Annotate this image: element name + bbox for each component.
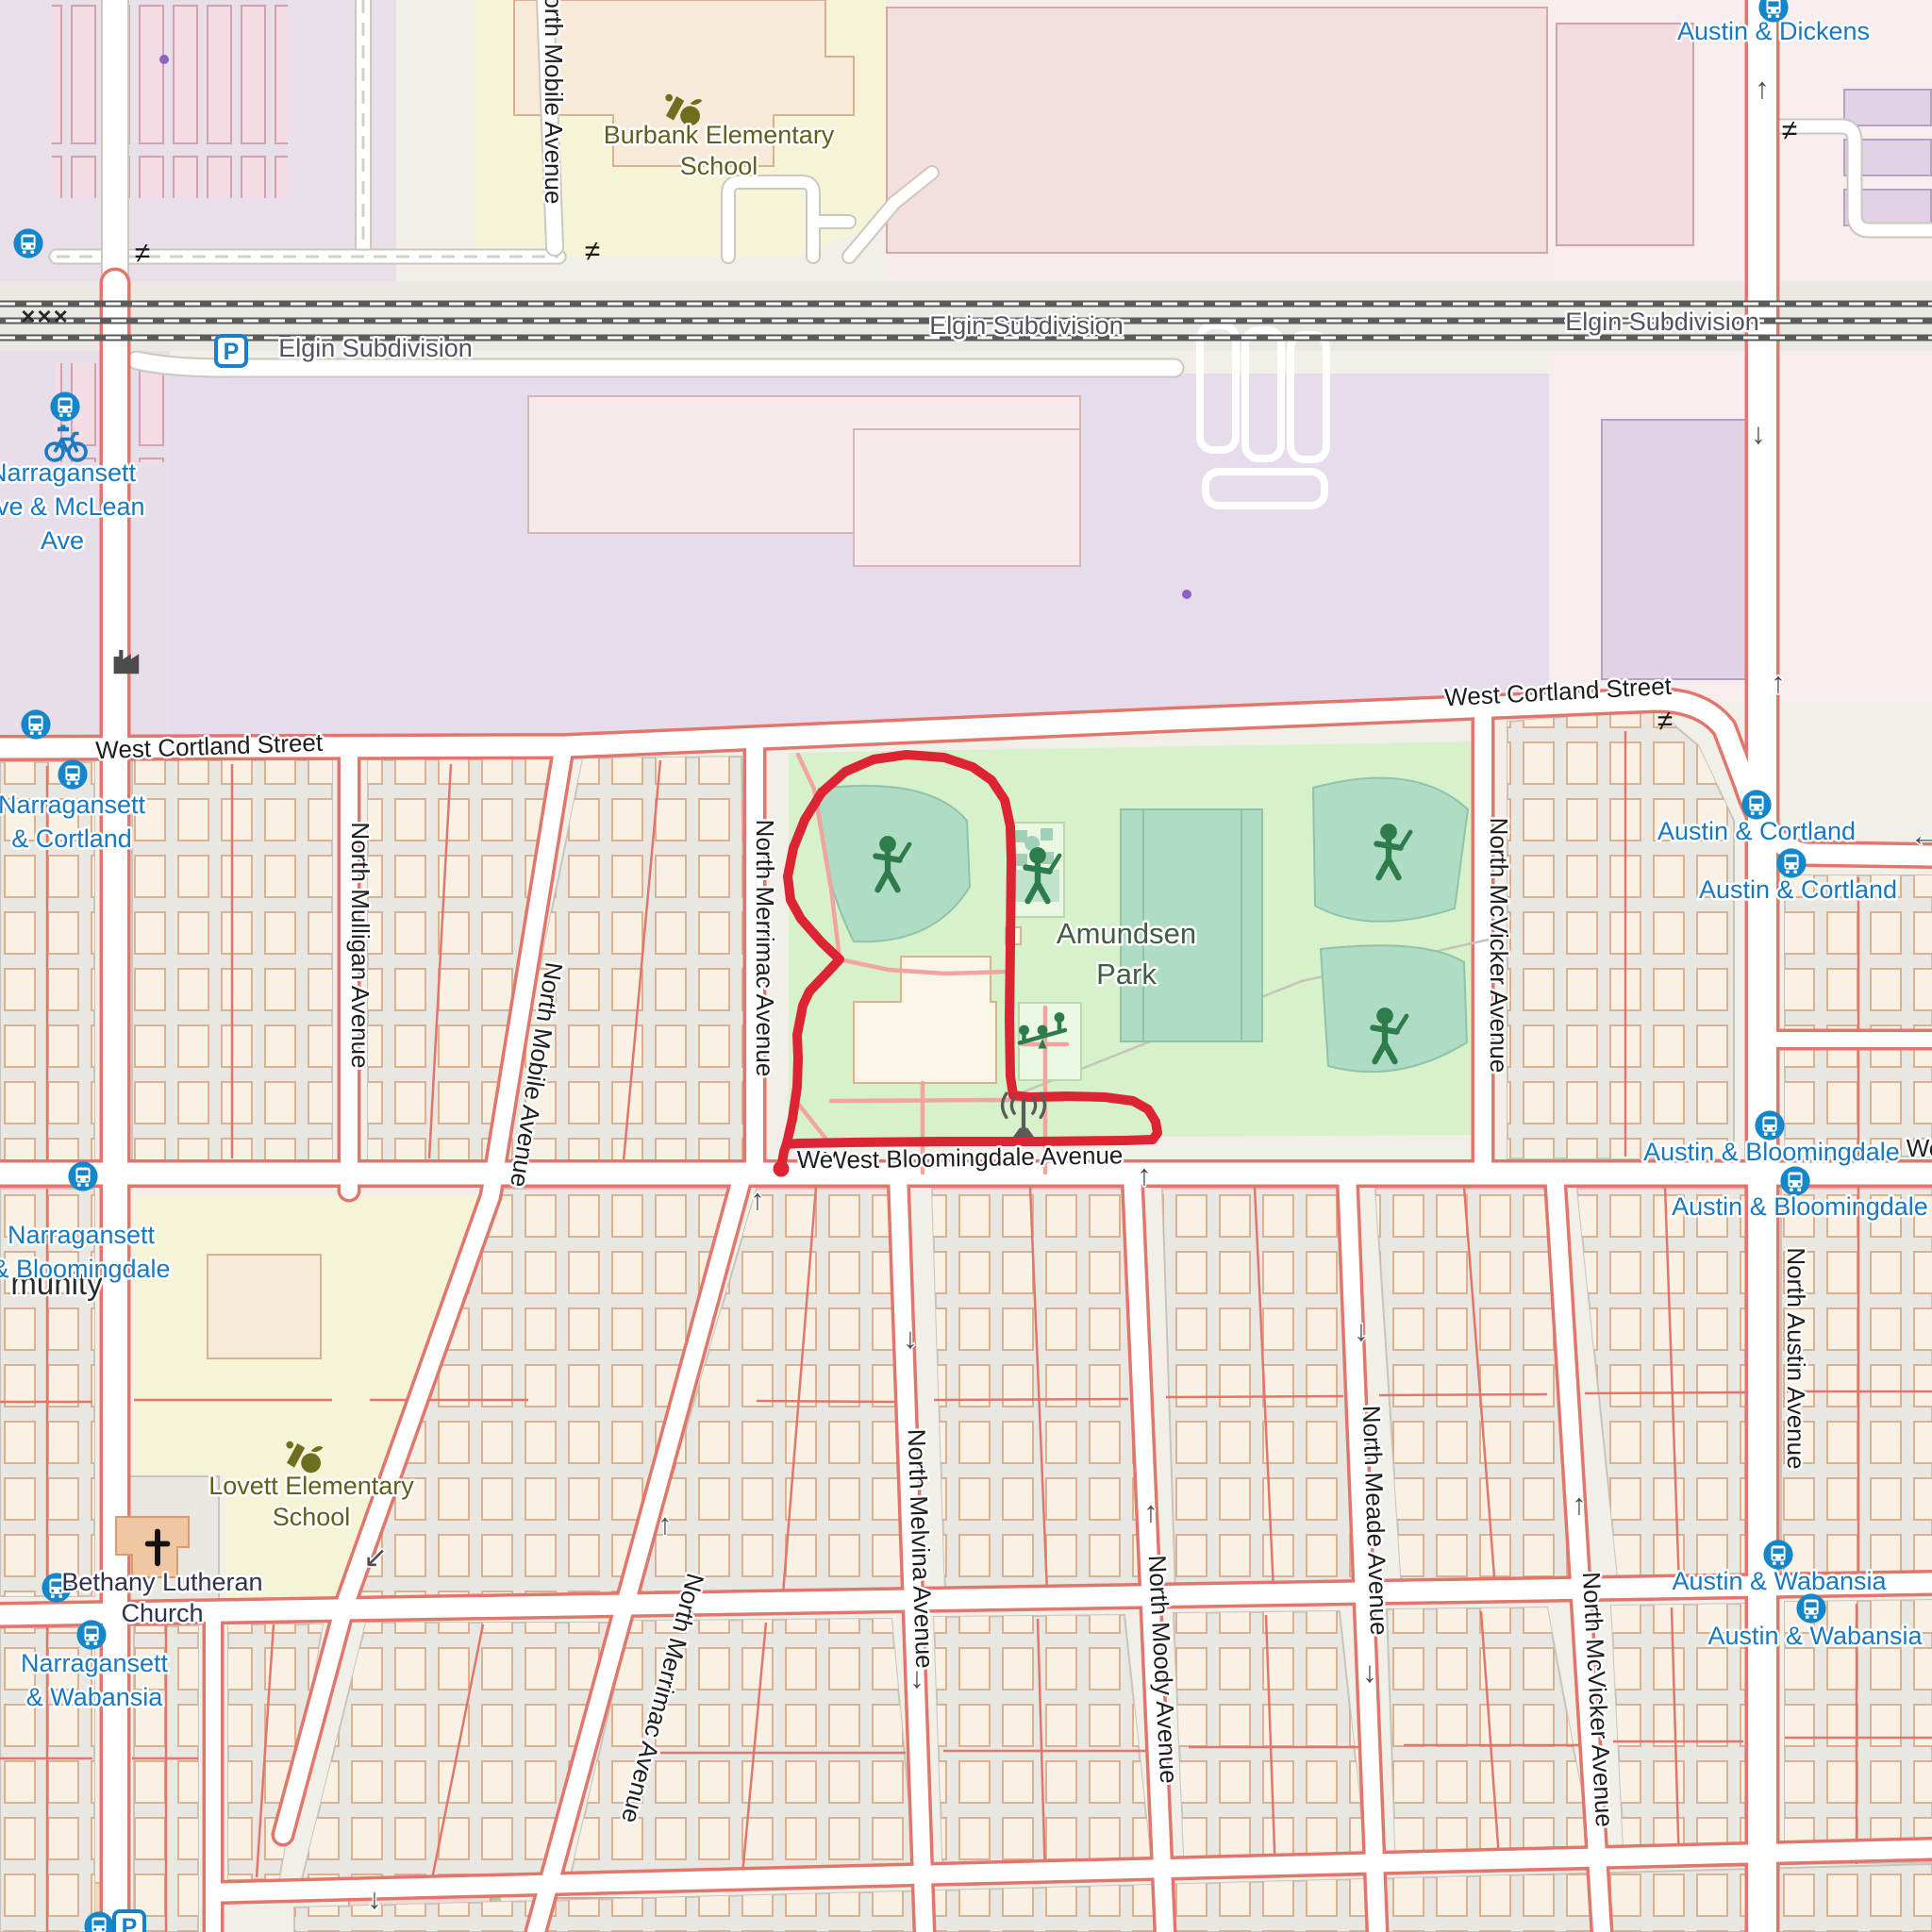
oneway-arrow-icon: ↑ (1755, 72, 1770, 105)
oneway-arrow-icon: ↑ (1572, 1488, 1587, 1521)
railway-label: Elgin Subdivision (1565, 308, 1759, 336)
parking-icon: P (114, 1911, 144, 1932)
transit-stop-label: Austin & Dickens (1677, 17, 1870, 45)
bus-stop-icon (1796, 1593, 1825, 1623)
transit-stop-label: Narragansett (0, 458, 137, 487)
transit-stop-label: & Bloomingdale (0, 1255, 171, 1283)
railway-label: Elgin Subdivision (929, 311, 1124, 340)
bus-stop-icon (21, 709, 50, 739)
level-crossing-icon: ≠ (135, 238, 150, 269)
street-label: North Mobile Avenue (540, 0, 568, 204)
street-label: North McVicker Avenue (1485, 818, 1513, 1074)
bus-stop-icon (50, 391, 79, 421)
transit-stop-label: Austin & Bloomingdale (1643, 1138, 1900, 1166)
transit-stop-label: Narragansett (8, 1221, 156, 1249)
transit-stop-label: Austin & Wabansia (1707, 1622, 1923, 1650)
oneway-arrow-icon: ↑ (1771, 666, 1786, 699)
street-label: We (797, 1145, 834, 1174)
railway-label: Elgin Subdivision (278, 334, 473, 362)
oneway-arrow-icon: ↓ (1362, 1656, 1377, 1689)
street-label: North Austin Avenue (1782, 1247, 1810, 1469)
transit-stop-label: Narragansett (21, 1649, 169, 1677)
street-label: North Mulligan Avenue (346, 822, 375, 1068)
oneway-arrow-icon: ↑ (750, 1183, 765, 1216)
poi-label: School (680, 152, 758, 180)
parking-icon: P (216, 336, 246, 366)
street-label: North Merrimac Avenue (751, 820, 779, 1077)
svg-text:P: P (122, 1914, 138, 1932)
park-label: Park (1096, 958, 1157, 991)
oneway-arrow-icon: ↓ (367, 1882, 382, 1915)
oneway-arrow-icon: ↓ (1354, 1314, 1369, 1347)
level-crossing-icon: ≠ (1782, 115, 1797, 146)
transit-stop-label: Austin & Cortland (1657, 817, 1856, 845)
oneway-arrow-icon: ↑ (658, 1507, 673, 1541)
bus-stop-icon (58, 759, 87, 789)
transit-stop-label: & Cortland (11, 824, 132, 853)
transit-stop-label: Austin & Wabansia (1672, 1567, 1887, 1595)
map-viewport[interactable]: PP≠≠≠≠×××↑↓↑←↑↑↑↓↓↑↓↓↑↓↙ North Mobile Av… (0, 0, 1932, 1932)
transit-stop-label: Narragansett (0, 791, 146, 819)
poi-label: School (273, 1503, 351, 1531)
bus-stop-icon (1741, 790, 1771, 819)
poi-label: Lovett Elementary (208, 1472, 414, 1500)
transit-stop-label: Austin & Bloomingdale (1672, 1192, 1928, 1221)
street-label: West Bloomingdale Avenue (824, 1141, 1124, 1174)
bus-stop-icon (1780, 1166, 1809, 1195)
oneway-arrow-icon: ↙ (363, 1541, 388, 1574)
poi-dot (159, 55, 169, 64)
oneway-arrow-icon: ↑ (1137, 1158, 1152, 1191)
oneway-arrow-icon: ↑ (1143, 1495, 1158, 1528)
bus-stop-icon (1776, 848, 1806, 877)
level-crossing-icon: ≠ (1657, 706, 1673, 737)
poi-label: Burbank Elementary (604, 121, 835, 149)
bus-stop-icon (13, 228, 42, 258)
level-crossing-icon: ≠ (585, 236, 600, 267)
bus-stop-icon (76, 1620, 106, 1649)
bus-stop-icon (1763, 1540, 1792, 1569)
poi-label: Bethany Lutheran (61, 1568, 262, 1596)
poi-dot (1182, 590, 1191, 599)
transit-stop-label: Ave & McLean (0, 492, 145, 521)
oneway-arrow-icon: ↓ (903, 1322, 918, 1355)
bus-stop-icon (1755, 1110, 1784, 1140)
transit-stop-label: Ave (41, 526, 84, 555)
railway-crossing-marks: ××× (21, 302, 70, 330)
poi-label: Church (121, 1599, 203, 1627)
park-label: Amundsen (1057, 917, 1196, 950)
street-label: We (1907, 1134, 1932, 1162)
transit-stop-label: & Wabansia (26, 1683, 164, 1711)
oneway-arrow-icon: ↓ (1751, 417, 1766, 450)
transit-stop-label: Austin & Cortland (1699, 875, 1897, 904)
oneway-arrow-icon: ← (1910, 819, 1932, 852)
bus-stop-icon (68, 1161, 97, 1191)
route-start-dot (774, 1161, 790, 1177)
svg-text:P: P (224, 339, 240, 365)
